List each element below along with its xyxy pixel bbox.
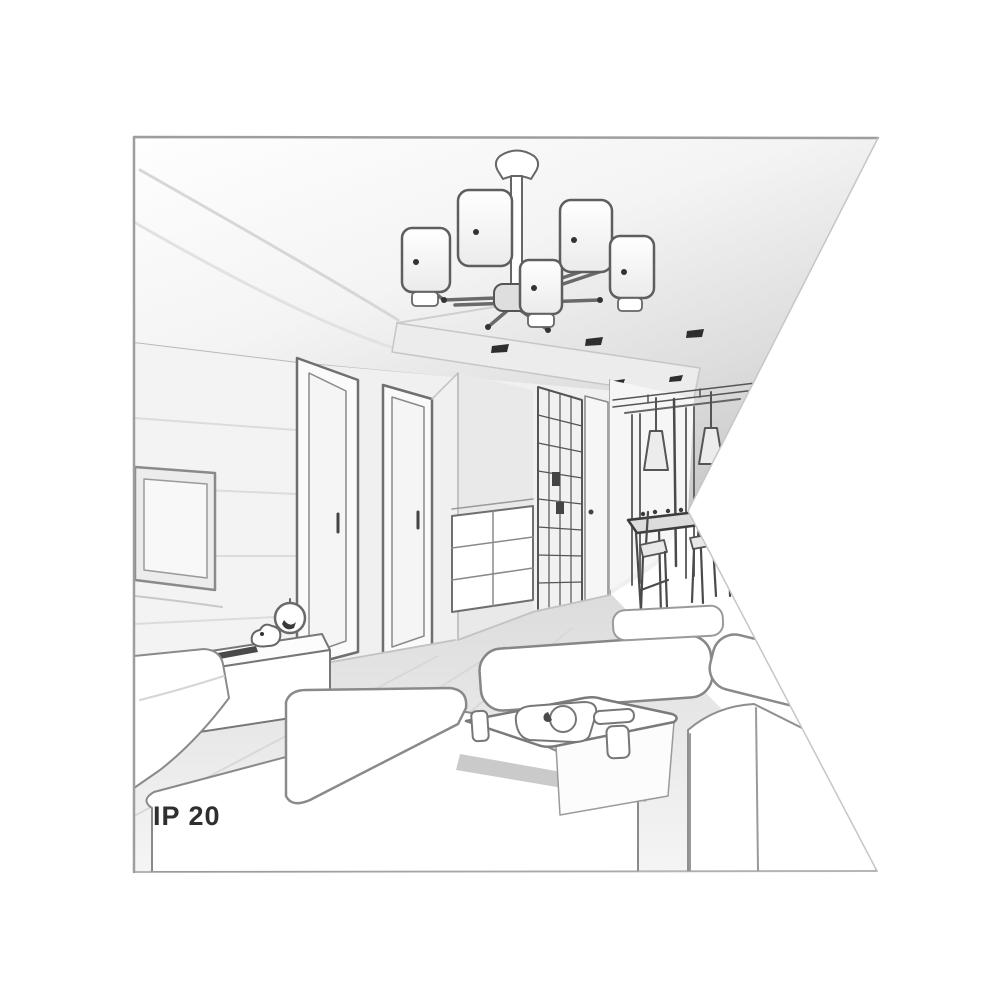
glazed-cabinet — [538, 387, 582, 620]
cup-1 — [471, 710, 489, 741]
drawer-chest — [452, 499, 533, 612]
ip-rating-label: IP 20 — [153, 801, 221, 832]
door-left — [309, 373, 346, 654]
sofa-right-seat — [688, 704, 877, 872]
product-illustration: IP 20 — [0, 0, 1000, 1000]
tv-screen-inner — [144, 479, 207, 578]
hallway-door-handle — [589, 510, 594, 515]
living-room-sketch — [0, 0, 1000, 1000]
cup-2 — [606, 725, 630, 758]
plate — [594, 709, 635, 725]
teapot — [550, 706, 576, 732]
chandelier-canopy — [496, 151, 538, 180]
hallway-door — [585, 396, 608, 607]
